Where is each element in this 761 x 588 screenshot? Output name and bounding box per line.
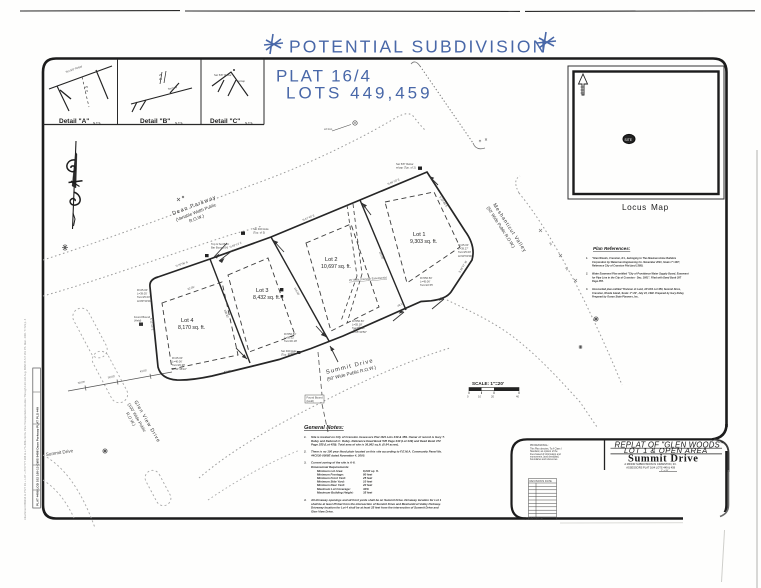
svg-text:ASSESSORS PLAT 16/4 LOTS: ASSESSORS PLAT 16/4 LOTS 449 & 459 [626, 466, 675, 470]
svg-text:(Held): (Held) [307, 399, 314, 403]
svg-text:x2 Iron: x2 Iron [324, 127, 333, 131]
svg-text:Found Bound: Found Bound [307, 396, 324, 400]
svg-text:for Pipe Line in the City of C: for Pipe Line in the City of Cranston - … [592, 276, 682, 279]
svg-text:Prepared by Ocean State Planne: Prepared by Ocean State Planners, Inc. [592, 296, 639, 299]
svg-text:"Glen Woods, Cranston, R.I., b: "Glen Woods, Cranston, R.I., belonging t… [592, 257, 677, 260]
svg-text:23: 23 [159, 77, 162, 81]
svg-text:POTENTIAL SUBDIVISION: POTENTIAL SUBDIVISION [289, 37, 547, 57]
svg-text:N.T.S.: N.T.S. [245, 121, 253, 125]
svg-text:w/cap: w/cap [238, 79, 246, 83]
svg-text:L=60.32': L=60.32' [284, 336, 295, 340]
svg-text:SCALE: 1"=20': SCALE: 1"=20' [472, 381, 504, 386]
svg-text:Detail "C": Detail "C" [210, 118, 240, 125]
svg-text:Standard, an opinion of the: Standard, an opinion of the [530, 450, 558, 453]
svg-text:Lot 4: Lot 4 [181, 318, 193, 324]
svg-text:3.: 3. [304, 461, 307, 465]
svg-text:Reference City of Cranston Pla: Reference City of Cranston Plat (and 138… [592, 265, 644, 268]
svg-text:R=25.00': R=25.00' [458, 243, 469, 247]
svg-text:10: 10 [478, 395, 481, 399]
svg-text:Δ=91°48'10": Δ=91°48'10" [172, 367, 187, 371]
svg-text:10,697 sq. ft.: 10,697 sq. ft. [321, 264, 351, 270]
svg-text:General Notes:: General Notes: [304, 425, 344, 431]
svg-text:R=556.50': R=556.50' [420, 276, 433, 280]
svg-text:PLAT 4496 LOD 102 160-13 GW: PLAT 4496 LOD 102 160-13 GWS 9498 Dean P… [36, 407, 40, 506]
svg-text:25: 25 [159, 73, 162, 77]
svg-text:L=39.05': L=39.05' [137, 292, 148, 296]
svg-text:Lot 3: Lot 3 [256, 288, 268, 294]
svg-text:R=556.50': R=556.50' [284, 332, 297, 336]
svg-text:R=25.00': R=25.00' [172, 356, 183, 360]
svg-text:Attachment 889914 to #727 R1 +: Attachment 889914 to #727 R1 + LOT + #72… [23, 318, 27, 520]
svg-text:2.: 2. [585, 273, 588, 276]
svg-text:PROFESSIONAL:: PROFESSIONAL: [530, 444, 549, 447]
svg-text:9,303 sq. ft.: 9,303 sq. ft. [410, 239, 437, 245]
svg-text:2.: 2. [303, 450, 307, 454]
svg-text:Maximum Building Height:: Maximum Building Height: [317, 490, 354, 494]
svg-text:lines based of information and: lines based of information and [530, 453, 561, 456]
svg-text:N.T.S.: N.T.S. [93, 121, 101, 125]
svg-text:44C030-0008E dated November 4,: 44C030-0008E dated November 4, 2000. [310, 453, 365, 457]
svg-text:Lot 1: Lot 1 [413, 232, 425, 238]
svg-text:Map: Map [651, 203, 669, 212]
svg-text:Set Drill Hole: Set Drill Hole [281, 349, 297, 353]
svg-text:4.: 4. [303, 498, 307, 502]
svg-text:Unrecorded plan entitled "Divi: Unrecorded plan entitled "Division of La… [592, 288, 681, 291]
svg-text:1.: 1. [304, 435, 307, 439]
svg-text:Water Easement Plan entitled ": Water Easement Plan entitled "City of Pr… [592, 273, 689, 276]
svg-text:L=40.06': L=40.06' [172, 360, 183, 364]
svg-text:w/cap (Typ. of 2): w/cap (Typ. of 2) [396, 165, 416, 169]
svg-text:Glen View Drive.: Glen View Drive. [311, 509, 334, 513]
svg-text:23: 23 [85, 89, 88, 93]
svg-text:Tan=22.55': Tan=22.55' [420, 283, 434, 287]
svg-text:boundaries and references.: boundaries and references. [530, 458, 558, 461]
svg-text:Tan=27.61': Tan=27.61' [352, 326, 366, 330]
svg-text:R=25.00': R=25.00' [137, 288, 148, 292]
svg-text:Detail "A": Detail "A" [59, 118, 89, 125]
svg-text:Bar Bound (H): Bar Bound (H) [211, 245, 228, 249]
svg-text:L=39.27': L=39.27' [458, 247, 469, 251]
svg-text:REVISIONS DATE: REVISIONS DATE [530, 479, 553, 483]
svg-text:Found Bound: Found Bound [134, 315, 151, 319]
svg-text:REV DATE: REV DATE [530, 516, 543, 520]
svg-text:Set 5/8" Rebar: Set 5/8" Rebar [396, 162, 414, 166]
svg-text:Detail "B": Detail "B" [140, 118, 170, 125]
svg-text:This Plan denotes, To A Class: This Plan denotes, To A Class I [530, 448, 562, 451]
svg-text:35 feet: 35 feet [363, 490, 373, 494]
svg-text:25: 25 [85, 85, 88, 89]
svg-text:Δ=89°30'30": Δ=89°30'30" [137, 299, 152, 303]
svg-text:A MINOR SUBDIVISION IN CRA: A MINOR SUBDIVISION IN CRANSTON, R.I. [624, 462, 677, 466]
svg-text:Tan=25.00': Tan=25.00' [137, 295, 151, 299]
svg-text:Tan=26.38': Tan=26.38' [172, 363, 186, 367]
svg-text:L=45.06': L=45.06' [420, 280, 431, 284]
svg-text:Δ=05°40'50": Δ=05°40'50" [352, 330, 367, 334]
svg-text:Lot 2: Lot 2 [325, 257, 337, 263]
svg-text:Tan=25.00': Tan=25.00' [458, 250, 472, 254]
svg-text:1.: 1. [586, 257, 588, 260]
svg-text:40: 40 [516, 395, 519, 399]
svg-text:R=556.50': R=556.50' [352, 319, 365, 323]
svg-text:8,432 sq. ft.: 8,432 sq. ft. [253, 295, 280, 301]
svg-text:(Typ. of 5): (Typ. of 5) [281, 352, 293, 356]
svg-text:Set Drill Hole: Set Drill Hole [253, 227, 269, 231]
svg-text:L=55.18': L=55.18' [352, 323, 363, 327]
svg-text:Page 255.: Page 255. [592, 280, 604, 283]
svg-text:LOTS 449,459: LOTS 449,459 [286, 84, 433, 103]
svg-text:Plan References:: Plan References: [593, 246, 631, 251]
svg-text:Page 255 (Lot 459). Total are: Page 255 (Lot 459). Total area of site i… [311, 443, 399, 447]
svg-text:N.T.S.: N.T.S. [175, 121, 183, 125]
svg-text:Corporation by Waterman Engine: Corporation by Waterman Engineering Co. … [592, 261, 680, 264]
svg-text:Cranston, Rhode Island, Scale:: Cranston, Rhode Island, Scale: 1"=20', J… [592, 292, 685, 295]
svg-text:(Held): (Held) [134, 318, 141, 322]
svg-text:Tan=30.18': Tan=30.18' [284, 339, 298, 343]
svg-text:20: 20 [491, 395, 494, 399]
svg-text:8,170 sq. ft.: 8,170 sq. ft. [178, 325, 205, 331]
svg-text:monuments, (and deed/plat): monuments, (and deed/plat) [530, 455, 559, 458]
svg-text:3.: 3. [586, 288, 588, 291]
svg-text:Locus: Locus [622, 203, 647, 212]
svg-text:(Typ. of 5): (Typ. of 5) [253, 230, 265, 234]
svg-text:Set 5/8" Rebar: Set 5/8" Rebar [214, 73, 232, 77]
svg-text:1" = 20': 1" = 20' [661, 470, 669, 472]
svg-text:SITE: SITE [625, 138, 633, 142]
svg-text:Δ=90°00'00": Δ=90°00'00" [458, 254, 473, 258]
